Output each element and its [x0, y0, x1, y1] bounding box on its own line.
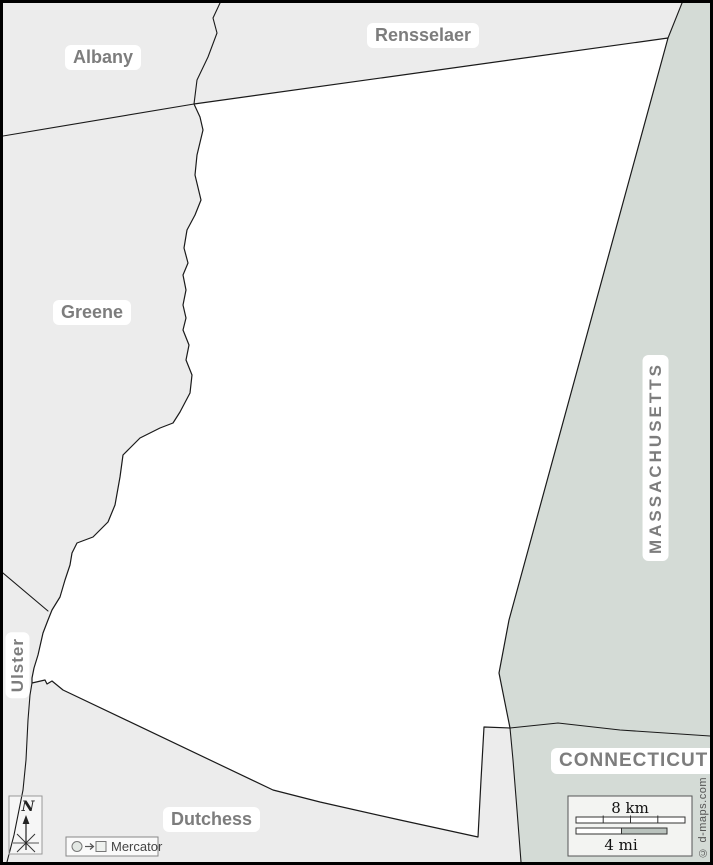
flat-map-square-icon: [96, 842, 106, 852]
attribution: © d-maps.com: [697, 777, 709, 859]
region-label-ulster: Ulster: [6, 632, 30, 698]
globe-sphere-icon: [72, 842, 82, 852]
scale-bar-km: [576, 816, 685, 824]
projection-indicator: Mercator: [66, 837, 163, 856]
county-outline-map: N 8 km 4 mi: [0, 0, 713, 865]
region-label-albany: Albany: [65, 45, 141, 70]
region-label-greene: Greene: [53, 300, 131, 325]
scale-km-label: 8 km: [611, 799, 649, 817]
map-canvas: N 8 km 4 mi: [3, 3, 710, 862]
region-label-dutchess: Dutchess: [163, 807, 260, 832]
compass-north-letter: N: [21, 799, 36, 815]
region-label-connecticut: CONNECTICUT: [551, 748, 713, 774]
region-label-massachusetts: MASSACHUSETTS: [643, 355, 669, 561]
scale-bar-mi: [576, 828, 667, 834]
scale-mi-label: 4 mi: [604, 836, 638, 854]
region-label-rensselaer: Rensselaer: [367, 23, 479, 48]
projection-name: Mercator: [111, 839, 163, 854]
scale-box: 8 km 4 mi: [568, 796, 692, 856]
